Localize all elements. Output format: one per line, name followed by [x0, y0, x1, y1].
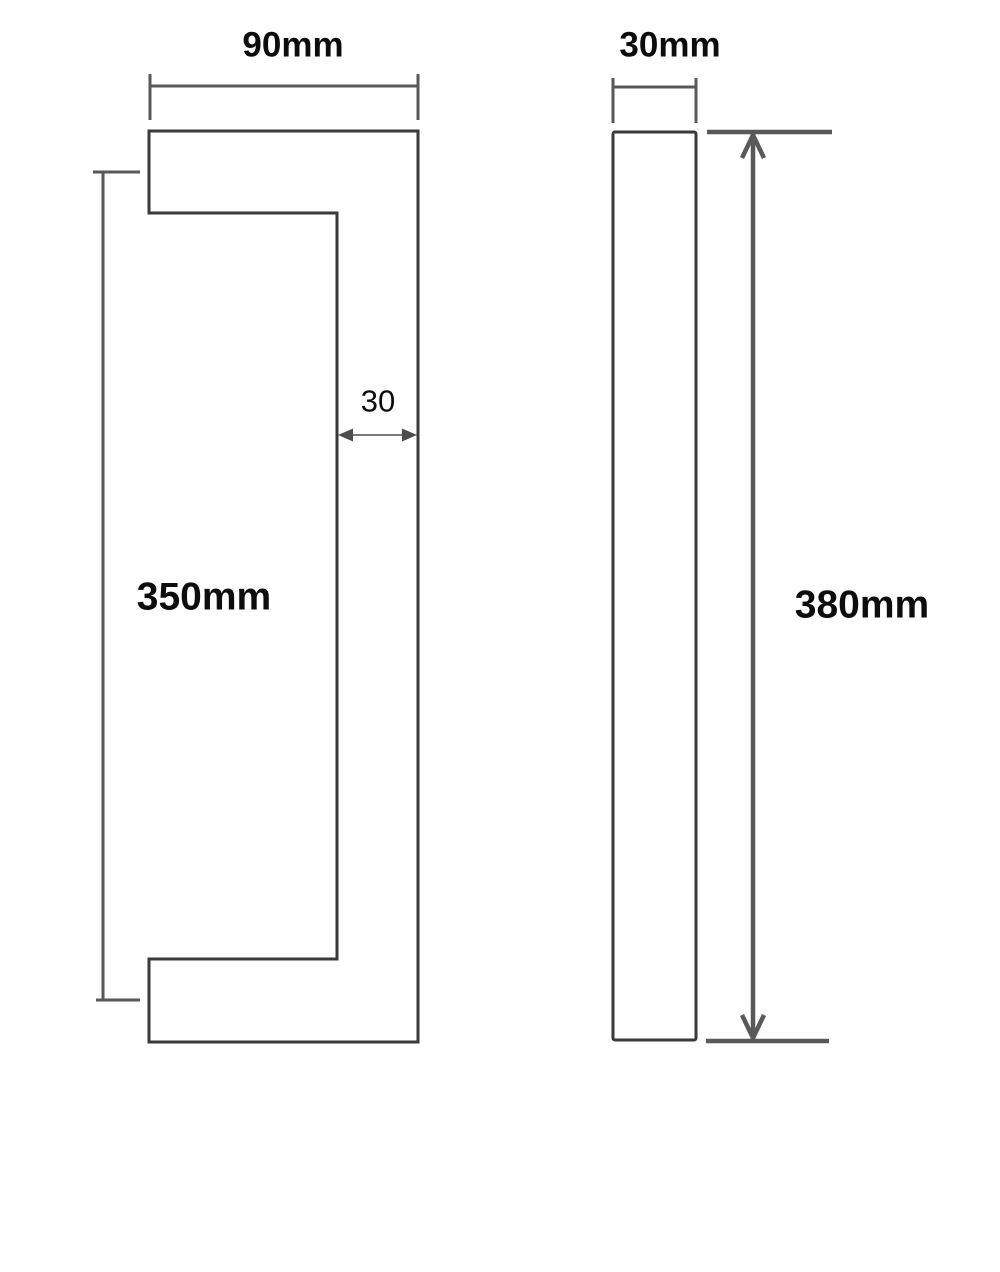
- side-view-height-label: 380mm: [795, 586, 929, 625]
- dimension-drawing-canvas: 90mm 30mm 30 350mm 380mm: [0, 0, 1000, 1272]
- front-view-height-label: 350mm: [137, 578, 271, 617]
- dim-350mm: [93, 172, 140, 1000]
- front-view-width-label: 90mm: [242, 28, 343, 63]
- side-view-width-label: 30mm: [619, 28, 720, 63]
- side-view: [613, 78, 832, 1041]
- dim-30-thickness: [338, 429, 417, 442]
- side-view-outline: [613, 132, 696, 1040]
- dim-30-arrowhead-right: [402, 429, 417, 442]
- dim-30-arrowhead-left: [338, 429, 353, 442]
- dim-30mm: [613, 78, 696, 123]
- dim-90mm: [150, 74, 418, 120]
- drawing-svg: [0, 0, 1000, 1272]
- front-view: [93, 74, 418, 1042]
- front-view-bar-thickness-label: 30: [361, 386, 395, 417]
